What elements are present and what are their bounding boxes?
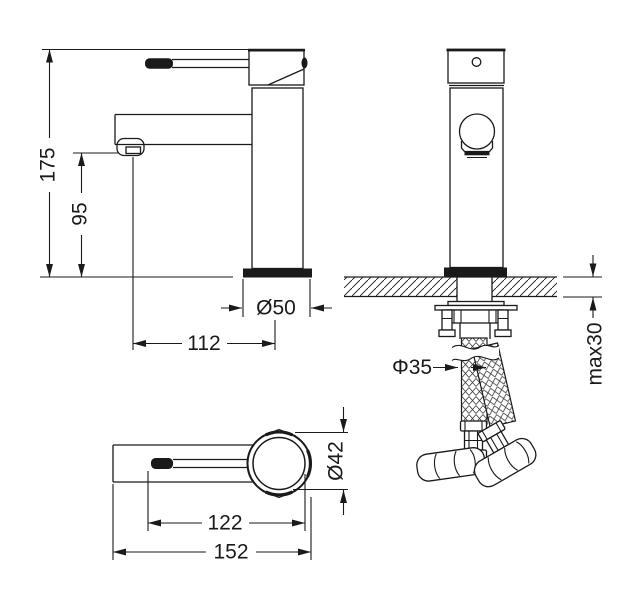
cap-pivot-dot xyxy=(302,58,308,69)
dim-label-122: 122 xyxy=(207,512,242,535)
cap-side xyxy=(249,50,304,86)
counter-hatch-right xyxy=(492,278,557,296)
faucet-technical-drawing: 175 95 Ø50 112 max30 xyxy=(0,0,644,600)
dim-total-height: 175 xyxy=(36,50,249,278)
mount-nut xyxy=(447,310,503,323)
base-front xyxy=(444,268,507,277)
mount-washer xyxy=(435,306,517,311)
technical-drawing-page: 175 95 Ø50 112 max30 xyxy=(0,0,644,600)
dim-label-95: 95 xyxy=(69,202,92,225)
cap-dot-front xyxy=(472,58,481,67)
body-inner-circle xyxy=(253,438,305,490)
mount-bolt-right xyxy=(498,310,508,330)
side-view xyxy=(115,50,312,278)
front-view xyxy=(444,50,507,277)
dim-label-152: 152 xyxy=(213,541,248,564)
top-view xyxy=(113,430,311,498)
bolt-foot-left xyxy=(439,330,455,337)
mount-bolt-left xyxy=(442,310,452,330)
body-side xyxy=(252,88,303,269)
base-side xyxy=(243,269,312,278)
mounting-hardware xyxy=(435,302,517,340)
dim-base-diameter: Ø50 xyxy=(221,279,332,320)
dim-label-phi35: Φ35 xyxy=(392,356,432,379)
dim-deck-thickness: max30 xyxy=(563,255,607,386)
lever-grip-side xyxy=(145,58,173,68)
spout-sphere-front xyxy=(460,114,495,149)
spout-top-outline xyxy=(113,445,256,482)
dim-spout-height: 95 xyxy=(69,153,120,277)
dim-label-175: 175 xyxy=(37,147,60,182)
dimension-annotations: 175 95 Ø50 112 max30 xyxy=(36,50,607,564)
dim-label-max30: max30 xyxy=(584,322,607,385)
hose-stub xyxy=(460,323,490,339)
lever-grip-top xyxy=(151,458,173,469)
aerator-lip-front xyxy=(465,152,490,156)
dim-label-112: 112 xyxy=(187,332,220,355)
dim-label-o42: Ø42 xyxy=(325,441,348,481)
dim-label-o50: Ø50 xyxy=(256,297,296,320)
lever-top xyxy=(173,460,256,468)
counter-hatch-left xyxy=(344,278,457,296)
lever-side xyxy=(172,60,249,68)
aerator-outlet-side xyxy=(126,147,141,154)
supply-hoses xyxy=(415,338,540,491)
bolt-foot-right xyxy=(495,330,511,337)
